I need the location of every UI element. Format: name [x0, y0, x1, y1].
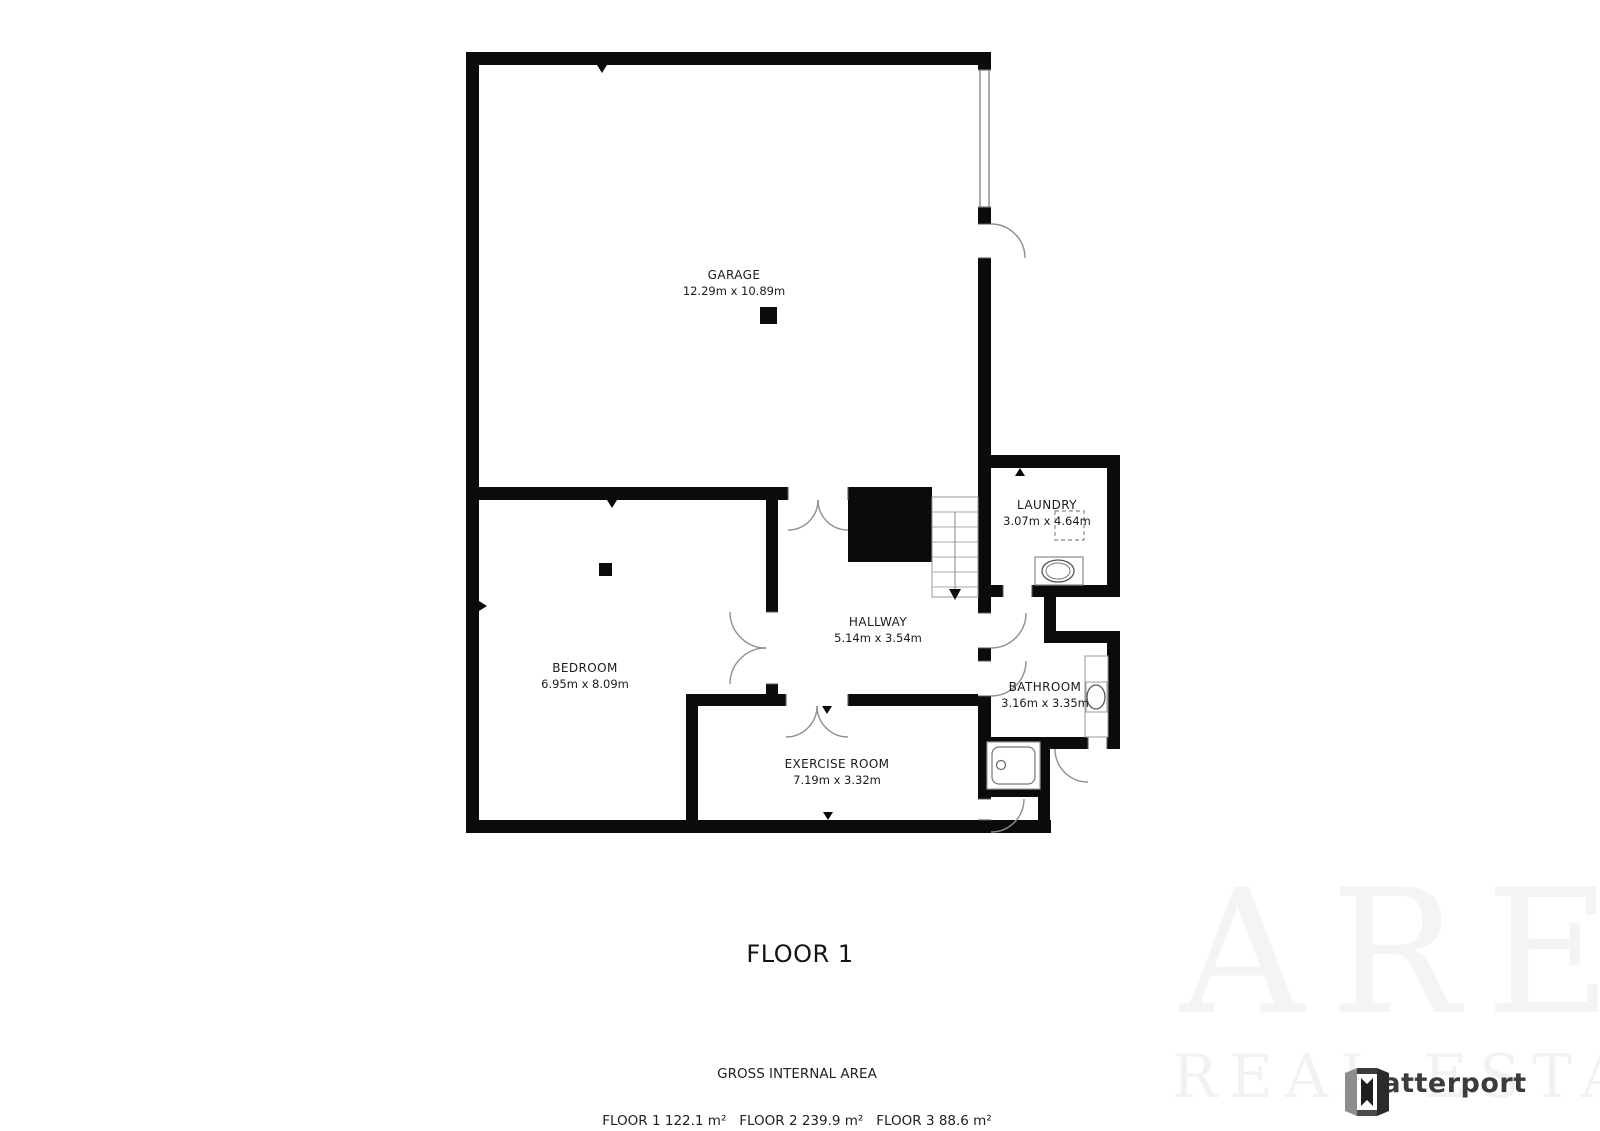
stair-void	[848, 487, 932, 562]
area-summary: GROSS INTERNAL AREA FLOOR 1 122.1 m² FLO…	[599, 1036, 996, 1131]
room-label-laundry: LAUNDRY 3.07m x 4.64m	[1003, 498, 1091, 528]
room-name: BATHROOM	[1001, 680, 1089, 694]
area-heading: GROSS INTERNAL AREA	[599, 1067, 996, 1083]
direction-ticks	[479, 65, 1025, 820]
wall-exercise-left	[686, 694, 698, 833]
tick-bedroom-top	[607, 500, 617, 508]
room-dims: 5.14m x 3.54m	[834, 631, 922, 645]
matterport-logo-icon	[1345, 1068, 1389, 1116]
wall-bathroom-right	[1107, 631, 1120, 749]
room-label-hallway: HALLWAY 5.14m x 3.54m	[834, 615, 922, 645]
wall-garage-top	[466, 52, 991, 65]
wall-left	[466, 52, 479, 833]
wall-bottom	[466, 820, 1051, 833]
wall-exercise-top-b	[848, 694, 978, 706]
exercise-door-swing-right	[817, 706, 848, 737]
tick-laundry-top	[1015, 468, 1025, 476]
garage-column	[760, 307, 777, 324]
floor-title: FLOOR 1	[746, 940, 853, 968]
bedroom-door-swing-bottom	[730, 648, 766, 684]
tick-exercise-top	[822, 706, 832, 714]
wall-exercise-top-a	[686, 694, 786, 706]
matterport-logo: Matterport	[1345, 1068, 1527, 1099]
room-dims: 7.19m x 3.32m	[785, 773, 890, 787]
garage-hall-door-swing-left	[788, 500, 818, 530]
bedroom-door-swing-top	[730, 612, 766, 648]
wall-laundry-bottom-b	[1032, 585, 1108, 597]
bathroom-exterior-door-swing	[1055, 749, 1088, 782]
wall-laundry-bottom-a	[991, 585, 1003, 597]
wall-bedroom-top	[466, 487, 788, 500]
wall-right-b	[978, 207, 991, 224]
shower	[987, 742, 1040, 789]
corridor-door-swing	[991, 613, 1026, 648]
garage-exterior-door-swing	[991, 224, 1025, 258]
room-label-bathroom: BATHROOM 3.16m x 3.35m	[1001, 680, 1089, 710]
stairs	[932, 497, 978, 600]
room-dims: 3.16m x 3.35m	[1001, 696, 1089, 710]
room-name: LAUNDRY	[1003, 498, 1091, 512]
bedroom-column	[599, 563, 612, 576]
wall-laundry-top	[985, 455, 1120, 468]
wall-vestibule-right	[1038, 785, 1050, 833]
wall-laundry-right	[1107, 455, 1120, 597]
wall-right-d	[978, 648, 991, 661]
garage-window	[978, 70, 991, 207]
walls	[466, 52, 1120, 833]
exercise-door-swing-left	[786, 706, 817, 737]
tick-left-wall	[479, 601, 487, 611]
tick-bottom-wall	[823, 812, 833, 820]
room-dims: 12.29m x 10.89m	[683, 284, 785, 298]
room-name: HALLWAY	[834, 615, 922, 629]
room-label-exercise-room: EXERCISE ROOM 7.19m x 3.32m	[785, 757, 890, 787]
room-dims: 6.95m x 8.09m	[541, 677, 629, 691]
tick-garage-top	[597, 65, 607, 73]
garage-hall-door-swing-right	[818, 500, 848, 530]
laundry-sink	[1035, 557, 1083, 585]
room-name: EXERCISE ROOM	[785, 757, 890, 771]
wall-right-c	[978, 258, 991, 613]
room-label-garage: GARAGE 12.29m x 10.89m	[683, 268, 785, 298]
floorplan-page: ARE REAL ESTATE	[0, 0, 1600, 1131]
room-dims: 3.07m x 4.64m	[1003, 514, 1091, 528]
wall-bedroom-right-a	[766, 487, 778, 612]
area-floors-line: FLOOR 1 122.1 m² FLOOR 2 239.9 m² FLOOR …	[599, 1114, 996, 1130]
room-name: BEDROOM	[541, 661, 629, 675]
room-label-bedroom: BEDROOM 6.95m x 8.09m	[541, 661, 629, 691]
wall-right-a	[978, 52, 991, 70]
room-name: GARAGE	[683, 268, 785, 282]
